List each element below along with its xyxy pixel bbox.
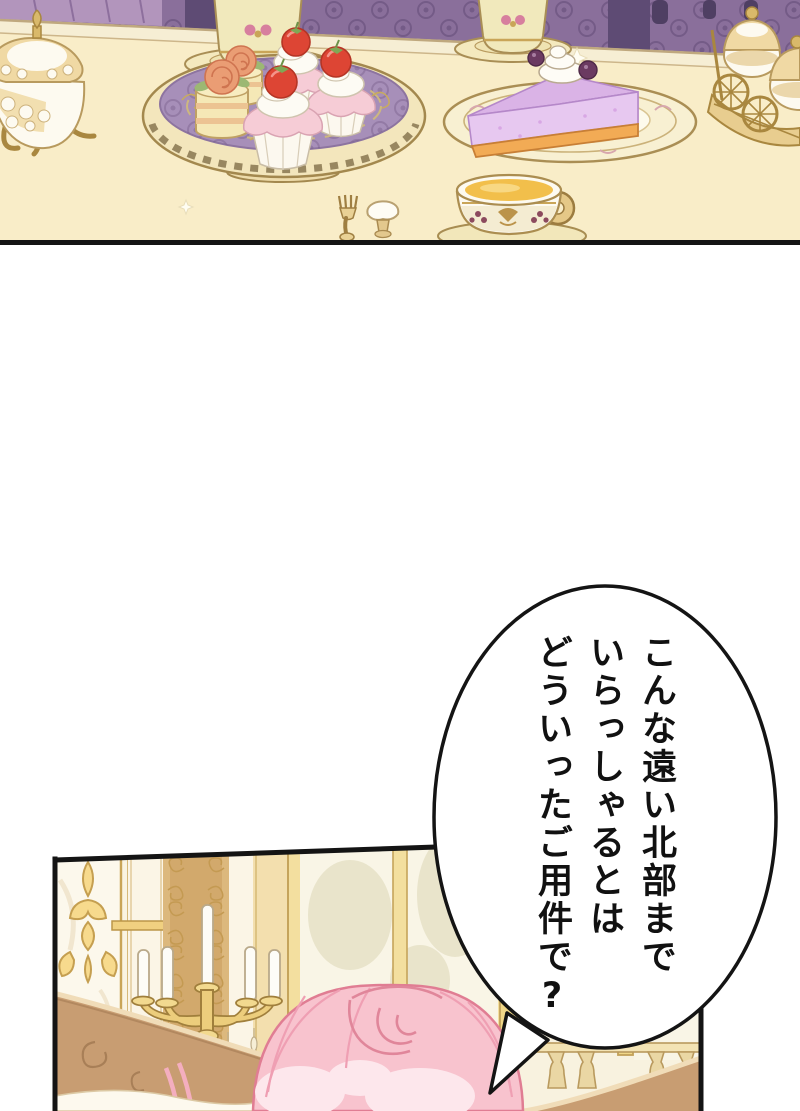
panel-border-top — [0, 240, 800, 245]
chair-rail — [112, 921, 169, 930]
speech-bubble-text: こんな遠い北部まで いらっしゃるとは どういったご用件で? — [512, 634, 682, 1054]
dialogue-line: こんな遠い北部まで — [630, 634, 682, 1054]
dialogue-line: いらっしゃるとは — [578, 634, 630, 1054]
panel-tea-table — [0, 0, 800, 250]
manga-page: こんな遠い北部まで いらっしゃるとは どういったご用件で? — [0, 0, 800, 1111]
dialogue-line: どういったご用件で? — [526, 634, 578, 1054]
